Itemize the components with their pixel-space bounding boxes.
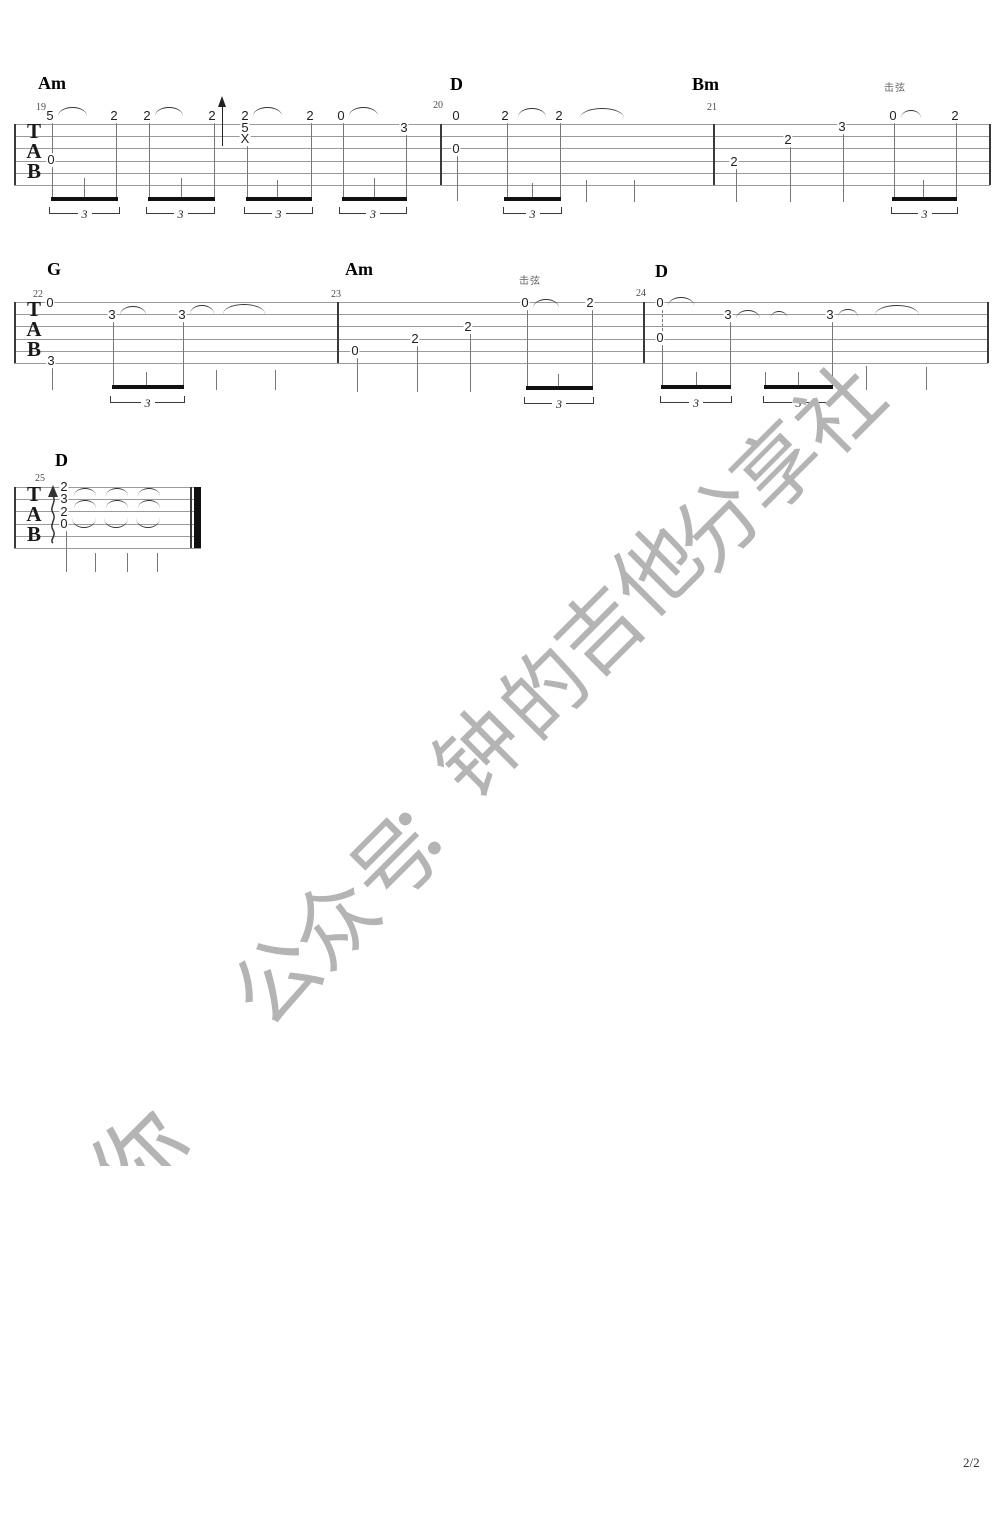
note-stem bbox=[926, 367, 927, 390]
note-stem bbox=[127, 553, 128, 572]
tie-arc bbox=[580, 108, 624, 118]
note-stem bbox=[247, 145, 248, 197]
tuplet-number: 3 bbox=[366, 209, 380, 219]
barline bbox=[337, 302, 339, 363]
tuplet-bracket: 3 bbox=[339, 207, 407, 214]
fret-note: 3 bbox=[825, 308, 834, 322]
fret-note: 2 bbox=[305, 109, 314, 123]
tie-arc bbox=[349, 107, 378, 116]
note-stem bbox=[149, 122, 150, 197]
fret-note: 0 bbox=[451, 109, 460, 123]
barline bbox=[713, 124, 715, 185]
beam bbox=[526, 386, 593, 390]
final-barline-thin bbox=[190, 487, 192, 548]
tie-arc bbox=[106, 500, 128, 508]
note-stem-dashed bbox=[662, 310, 663, 331]
note-stem bbox=[214, 122, 215, 197]
watermark-char: 分 bbox=[642, 449, 783, 590]
fret-note: 3 bbox=[177, 308, 186, 322]
fret-note: 3 bbox=[723, 308, 732, 322]
tab-clef-letter: B bbox=[24, 524, 44, 544]
tuplet-bracket: 3 bbox=[660, 396, 732, 403]
tie-arc-under bbox=[136, 518, 160, 528]
tuplet-bracket: 3 bbox=[763, 396, 834, 403]
measure-number: 21 bbox=[707, 103, 717, 113]
watermark-fragment-char: 你 bbox=[92, 1080, 197, 1166]
barline bbox=[14, 487, 16, 548]
fret-note: 2 bbox=[500, 109, 509, 123]
note-stem bbox=[417, 346, 418, 392]
tuplet-number: 3 bbox=[689, 398, 703, 408]
fret-note: 0 bbox=[46, 153, 55, 167]
note-stem bbox=[181, 178, 182, 197]
watermark-char: 众 bbox=[259, 847, 400, 988]
note-stem bbox=[374, 178, 375, 197]
note-stem bbox=[798, 372, 799, 385]
note-stem bbox=[866, 366, 867, 390]
tie-arc bbox=[253, 107, 282, 116]
beam bbox=[246, 197, 312, 201]
tuplet-number: 3 bbox=[78, 209, 92, 219]
barline bbox=[989, 124, 991, 185]
fret-note: 2 bbox=[142, 109, 151, 123]
note-stem bbox=[146, 372, 147, 385]
tuplet-bracket: 3 bbox=[146, 207, 215, 214]
tuplet-number: 3 bbox=[526, 209, 540, 219]
fret-note: 2 bbox=[463, 320, 472, 334]
note-stem bbox=[277, 180, 278, 197]
chord-label: D bbox=[55, 451, 68, 469]
fret-note: 3 bbox=[399, 121, 408, 135]
fret-note: 2 bbox=[410, 332, 419, 346]
tuplet-number: 3 bbox=[918, 209, 932, 219]
watermark-fragment: 你 bbox=[92, 1080, 197, 1166]
tie-arc bbox=[875, 305, 919, 315]
tab-clef: TAB bbox=[24, 299, 44, 359]
tie-arc bbox=[190, 305, 214, 314]
beam bbox=[112, 385, 184, 389]
watermark-char: 公 bbox=[201, 905, 342, 1046]
beam bbox=[764, 385, 833, 389]
fret-note: 2 bbox=[109, 109, 118, 123]
staff-line bbox=[14, 302, 988, 303]
tab-clef: TAB bbox=[24, 121, 44, 181]
watermark-char: 享 bbox=[702, 392, 843, 533]
note-stem bbox=[843, 133, 844, 202]
note-stem bbox=[592, 310, 593, 386]
chord-label: G bbox=[47, 260, 61, 278]
note-stem bbox=[84, 178, 85, 197]
fret-note: 2 bbox=[783, 133, 792, 147]
fret-note: 3 bbox=[837, 120, 846, 134]
note-stem bbox=[765, 372, 766, 385]
chord-label: Bm bbox=[692, 75, 719, 93]
watermark-char: 钟 bbox=[404, 677, 545, 818]
note-stem bbox=[216, 370, 217, 390]
tuplet-bracket: 3 bbox=[524, 397, 594, 404]
beam bbox=[148, 197, 215, 201]
note-stem bbox=[894, 123, 895, 197]
tie-arc bbox=[770, 311, 788, 319]
chord-label: D bbox=[450, 75, 463, 93]
note-stem bbox=[730, 322, 731, 385]
tuplet-number: 3 bbox=[552, 399, 566, 409]
fret-note: 2 bbox=[950, 109, 959, 123]
fret-note: 0 bbox=[888, 109, 897, 123]
tie-arc bbox=[58, 107, 87, 116]
measure-number: 23 bbox=[331, 290, 341, 300]
tab-clef-letter: A bbox=[24, 319, 44, 339]
fret-note: 2 bbox=[207, 109, 216, 123]
watermark-char: 他 bbox=[581, 495, 722, 636]
fret-note: 2 bbox=[729, 155, 738, 169]
note-stem bbox=[832, 322, 833, 385]
sheet-music-page: TABAmDBm192021击弦5022225X2030022223023333… bbox=[0, 0, 1000, 1528]
beam bbox=[892, 197, 957, 201]
note-stem bbox=[790, 146, 791, 202]
tie-arc bbox=[74, 500, 96, 508]
tuplet-number: 3 bbox=[141, 398, 155, 408]
tab-clef-letter: T bbox=[24, 484, 44, 504]
barline bbox=[14, 124, 16, 185]
tie-arc bbox=[74, 488, 96, 496]
fret-note: 0 bbox=[655, 331, 664, 345]
staff-line bbox=[14, 339, 988, 340]
note-stem bbox=[470, 334, 471, 392]
note-stem bbox=[157, 553, 158, 572]
tie-arc bbox=[120, 306, 146, 315]
tab-clef-letter: T bbox=[24, 299, 44, 319]
note-stem bbox=[95, 553, 96, 572]
barline bbox=[987, 302, 989, 363]
watermark-char: 社 bbox=[764, 334, 905, 475]
note-stem bbox=[66, 531, 67, 572]
tuplet-number: 3 bbox=[272, 209, 286, 219]
fret-note: 3 bbox=[107, 308, 116, 322]
strum-up-arrow-line bbox=[222, 106, 224, 146]
note-stem bbox=[923, 180, 924, 197]
note-stem bbox=[586, 180, 587, 202]
note-stem bbox=[736, 168, 737, 202]
note-stem bbox=[558, 374, 559, 386]
arpeggio-arrow-icon bbox=[46, 485, 60, 550]
fret-note: 0 bbox=[350, 344, 359, 358]
beam bbox=[504, 197, 561, 201]
fret-note: 0 bbox=[451, 142, 460, 156]
note-stem bbox=[457, 155, 458, 201]
tab-clef-letter: B bbox=[24, 339, 44, 359]
tie-arc bbox=[838, 309, 858, 317]
tuplet-number: 3 bbox=[174, 209, 188, 219]
note-stem bbox=[696, 372, 697, 385]
note-stem bbox=[956, 123, 957, 197]
chord-label: Am bbox=[38, 74, 66, 92]
watermark-char: 号 bbox=[319, 787, 460, 928]
tie-arc bbox=[668, 297, 694, 306]
tab-clef-letter: B bbox=[24, 161, 44, 181]
fret-note: 0 bbox=[45, 296, 54, 310]
tie-arc bbox=[533, 299, 559, 308]
note-stem bbox=[343, 122, 344, 197]
measure-number: 24 bbox=[636, 289, 646, 299]
tuplet-number: 3 bbox=[792, 398, 806, 408]
measure-number: 25 bbox=[35, 474, 45, 484]
barline bbox=[440, 124, 442, 185]
staff-line bbox=[14, 351, 988, 352]
note-stem bbox=[662, 344, 663, 385]
note-stem bbox=[634, 180, 635, 202]
beam bbox=[342, 197, 407, 201]
fret-note: 5 bbox=[45, 109, 54, 123]
tie-arc bbox=[901, 110, 921, 118]
fret-note: 0 bbox=[336, 109, 345, 123]
note-stem bbox=[311, 123, 312, 197]
measure-number: 22 bbox=[33, 290, 43, 300]
fret-note: X bbox=[240, 132, 251, 146]
hammer-on-label: 击弦 bbox=[519, 277, 541, 287]
note-stem bbox=[532, 183, 533, 197]
tab-clef: TAB bbox=[24, 484, 44, 544]
tie-arc bbox=[223, 304, 265, 314]
fret-note: 3 bbox=[46, 354, 55, 368]
fret-note: 2 bbox=[585, 296, 594, 310]
fret-note: 0 bbox=[59, 517, 68, 531]
final-barline-thick bbox=[194, 487, 201, 548]
measure-number: 20 bbox=[433, 101, 443, 111]
fret-note: 2 bbox=[554, 109, 563, 123]
tab-clef-letter: A bbox=[24, 141, 44, 161]
hammer-on-label: 击弦 bbox=[884, 84, 906, 94]
watermark-char: 的 bbox=[469, 617, 610, 758]
staff-line bbox=[14, 548, 201, 549]
tab-clef-letter: A bbox=[24, 504, 44, 524]
tie-arc bbox=[736, 310, 760, 319]
note-stem bbox=[527, 310, 528, 386]
fret-note: 0 bbox=[520, 296, 529, 310]
staff-line bbox=[14, 363, 988, 364]
tuplet-bracket: 3 bbox=[503, 207, 562, 214]
note-stem bbox=[183, 322, 184, 385]
note-stem bbox=[560, 123, 561, 197]
note-stem bbox=[52, 368, 53, 390]
note-stem bbox=[116, 122, 117, 197]
tie-arc-under bbox=[104, 518, 128, 528]
tie-arc bbox=[138, 488, 160, 496]
note-stem bbox=[113, 322, 114, 385]
tuplet-bracket: 3 bbox=[49, 207, 120, 214]
tuplet-bracket: 3 bbox=[244, 207, 313, 214]
note-stem bbox=[507, 123, 508, 197]
fret-note: 0 bbox=[655, 296, 664, 310]
staff-line bbox=[14, 326, 988, 327]
tie-arc bbox=[155, 107, 183, 116]
tab-clef-letter: T bbox=[24, 121, 44, 141]
page-number: 2/2 bbox=[963, 1456, 980, 1469]
tuplet-bracket: 3 bbox=[891, 207, 958, 214]
note-stem bbox=[275, 370, 276, 390]
beam bbox=[661, 385, 731, 389]
tie-arc-under bbox=[72, 518, 96, 528]
tie-arc bbox=[518, 108, 546, 117]
note-stem bbox=[406, 134, 407, 197]
chord-label: D bbox=[655, 262, 668, 280]
barline bbox=[14, 302, 16, 363]
tie-arc bbox=[138, 500, 160, 508]
beam bbox=[51, 197, 118, 201]
tuplet-bracket: 3 bbox=[110, 396, 185, 403]
chord-label: Am bbox=[345, 260, 373, 278]
tie-arc bbox=[106, 488, 128, 496]
barline bbox=[643, 302, 645, 363]
watermark-char: ： bbox=[357, 741, 498, 882]
note-stem bbox=[357, 358, 358, 392]
watermark-char: 吉 bbox=[524, 556, 665, 697]
